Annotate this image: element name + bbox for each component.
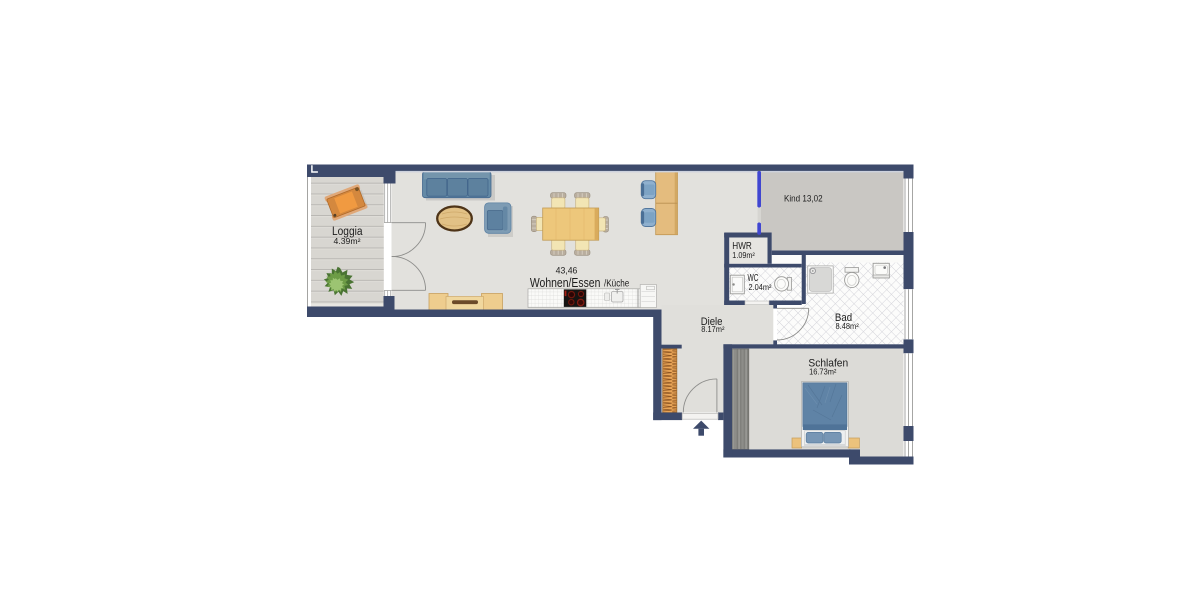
svg-text:/Küche: /Küche (604, 279, 630, 290)
svg-text:8.48m²: 8.48m² (836, 322, 859, 331)
svg-text:16.73m²: 16.73m² (809, 368, 837, 377)
svg-text:WC: WC (748, 272, 759, 284)
svg-text:4.39m²: 4.39m² (334, 237, 361, 246)
svg-text:2.04m²: 2.04m² (749, 283, 772, 292)
svg-text:1.09m²: 1.09m² (732, 251, 755, 260)
svg-text:Kind 13,02: Kind 13,02 (784, 193, 823, 203)
svg-text:8.17m²: 8.17m² (701, 325, 724, 334)
svg-text:Wohnen/Essen: Wohnen/Essen (530, 275, 601, 290)
